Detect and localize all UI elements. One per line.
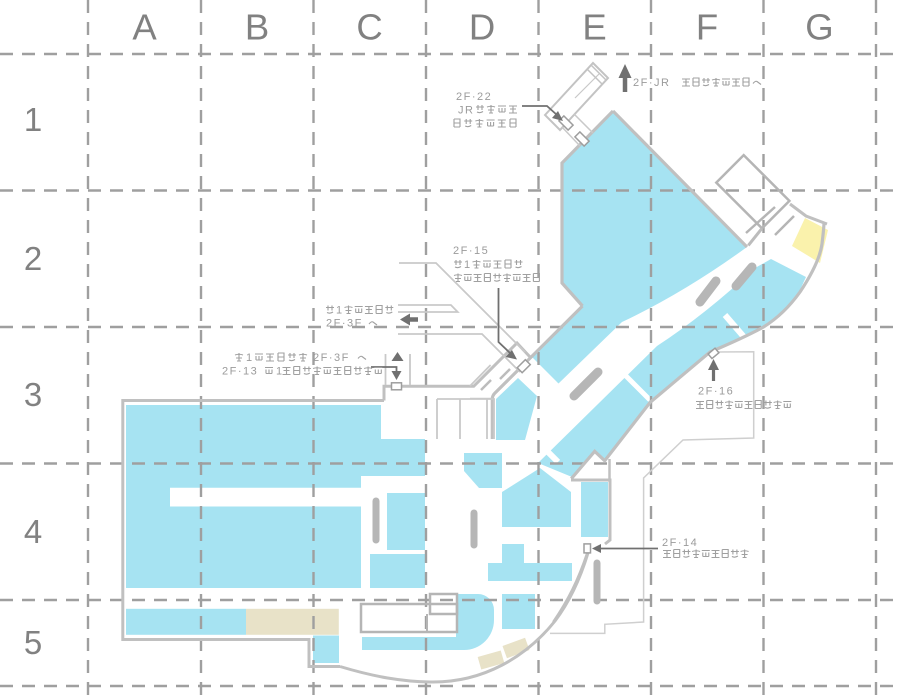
svg-text:1: 1 (24, 101, 42, 138)
svg-text:5: 5 (24, 624, 42, 661)
svg-text:G: G (805, 7, 833, 48)
svg-text:F: F (696, 7, 718, 48)
svg-text:E: E (582, 7, 606, 48)
svg-text:2F·3F: 2F·3F (313, 352, 350, 364)
svg-text:1: 1 (336, 305, 344, 317)
svg-text:2F·22: 2F·22 (456, 91, 492, 103)
svg-text:3: 3 (24, 376, 42, 413)
svg-text:2F·JR: 2F·JR (633, 77, 670, 89)
svg-text:1: 1 (276, 366, 284, 378)
svg-text:4: 4 (24, 513, 42, 550)
svg-text:C: C (356, 7, 382, 48)
svg-text:2: 2 (24, 240, 42, 277)
svg-text:2F·16: 2F·16 (698, 386, 734, 398)
svg-text:JR: JR (458, 105, 474, 117)
svg-text:2F·3F: 2F·3F (326, 318, 363, 330)
svg-text:2F·13: 2F·13 (222, 366, 258, 378)
svg-text:2F·15: 2F·15 (453, 245, 489, 257)
svg-text:A: A (132, 7, 157, 48)
svg-text:2F·14: 2F·14 (662, 537, 698, 549)
svg-text:B: B (245, 7, 269, 48)
svg-text:1: 1 (246, 352, 254, 364)
svg-text:1: 1 (464, 259, 472, 271)
svg-text:D: D (469, 7, 495, 48)
